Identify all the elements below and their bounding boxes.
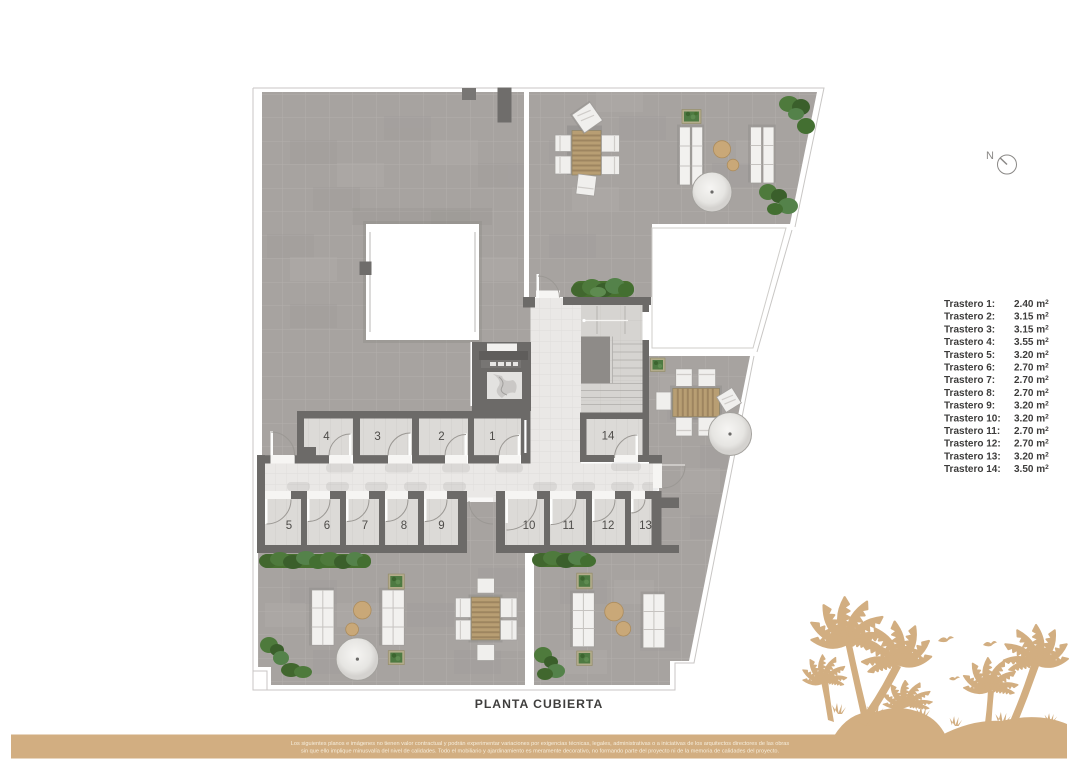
svg-text:2: 2 [438,431,444,443]
svg-text:Trastero 10:3.20 m2: Trastero 10:3.20 m2 [944,413,1049,424]
svg-text:sin que ello implique minusval: sin que ello implique minusvalía del niv… [301,749,780,755]
svg-text:Trastero 6:2.70 m2: Trastero 6:2.70 m2 [944,363,1049,374]
svg-text:8: 8 [401,520,407,532]
svg-text:Trastero 12:2.70 m2: Trastero 12:2.70 m2 [944,439,1049,450]
svg-text:Trastero 13:3.20 m2: Trastero 13:3.20 m2 [944,451,1049,462]
svg-text:11: 11 [563,520,575,532]
svg-text:PLANTA CUBIERTA: PLANTA CUBIERTA [475,697,604,711]
svg-text:Trastero 5:3.20 m2: Trastero 5:3.20 m2 [944,350,1049,361]
svg-text:Trastero 1:2.40 m2: Trastero 1:2.40 m2 [944,299,1049,310]
svg-text:12: 12 [602,520,615,532]
svg-text:4: 4 [323,431,330,443]
svg-text:N: N [986,150,994,162]
svg-text:Trastero 14:3.50 m2: Trastero 14:3.50 m2 [944,464,1049,475]
svg-text:3: 3 [374,431,380,443]
svg-text:1: 1 [489,431,495,443]
svg-text:10: 10 [523,520,536,532]
svg-text:Los siguientes planos e imágen: Los siguientes planos e imágenes no tien… [291,741,790,747]
svg-text:5: 5 [286,520,292,532]
svg-text:14: 14 [602,431,615,443]
svg-text:13: 13 [639,520,652,532]
svg-text:Trastero 8:2.70 m2: Trastero 8:2.70 m2 [944,388,1049,399]
svg-text:6: 6 [324,520,330,532]
svg-text:Trastero 3:3.15 m2: Trastero 3:3.15 m2 [944,324,1049,335]
svg-text:Trastero 2:3.15 m2: Trastero 2:3.15 m2 [944,312,1049,323]
svg-text:Trastero 11:2.70 m2: Trastero 11:2.70 m2 [944,426,1049,437]
svg-text:Trastero 9:3.20 m2: Trastero 9:3.20 m2 [944,401,1049,412]
svg-text:Trastero 4:3.55 m2: Trastero 4:3.55 m2 [944,337,1049,348]
svg-text:Trastero 7:2.70 m2: Trastero 7:2.70 m2 [944,375,1049,386]
svg-text:9: 9 [438,520,444,532]
svg-text:7: 7 [362,520,368,532]
